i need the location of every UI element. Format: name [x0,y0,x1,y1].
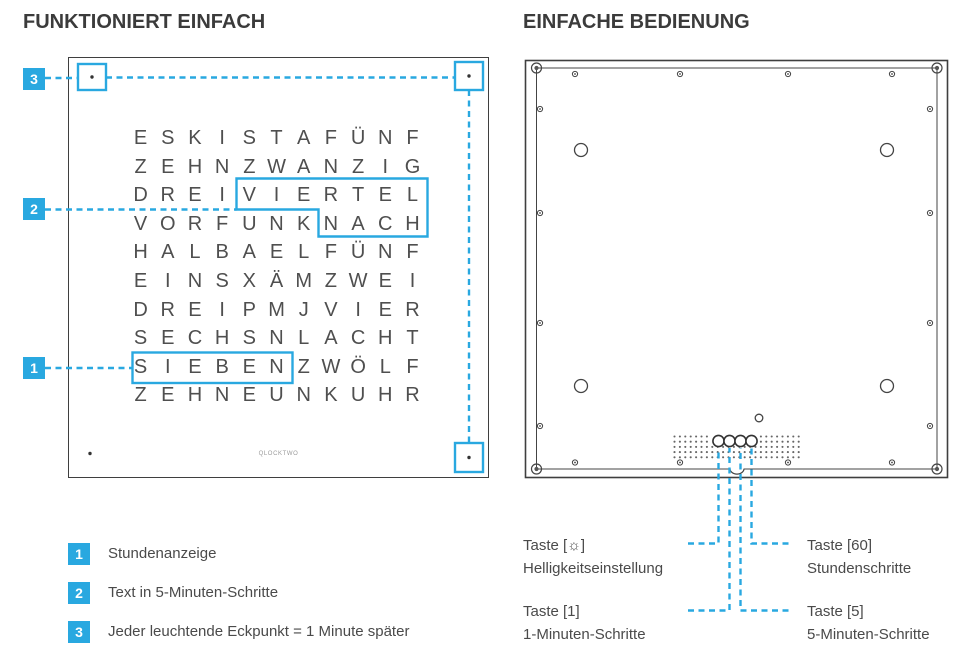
clock-letter: F [399,353,426,382]
legend-item: 1Stundenanzeige [68,543,216,565]
button-name: Taste [1] [523,600,646,623]
clock-letter: N [317,210,344,239]
clock-letter: D [127,181,154,210]
clock-letter: M [290,267,317,296]
clock-letter: E [181,353,208,382]
clock-grid-row: SIEBENZWÖLF [127,353,426,382]
manual-page: FUNKTIONIERT EINFACH EINFACHE BEDIENUNG … [0,0,979,670]
button-desc: Helligkeitseinstellung [523,557,663,580]
clock-letter-grid: ESKISTAFÜNFZEHNZWANZIGDREIVIERTELVORFUNK… [127,124,426,410]
clock-letter: Ö [345,353,372,382]
button-label-1min: Taste [1] 1-Minuten-Schritte [523,600,646,646]
legend-badge: 2 [68,582,90,604]
clock-grid-row: ESKISTAFÜNF [127,124,426,153]
clock-letter: A [290,124,317,153]
clock-letter: T [263,124,290,153]
clock-letter: Ä [263,267,290,296]
clock-letter: R [154,296,181,325]
clock-letter: U [345,381,372,410]
clock-letter: B [209,238,236,267]
clock-letter: E [372,181,399,210]
clock-letter: H [181,153,208,182]
page-title: FUNKTIONIERT EINFACH [23,11,265,34]
clock-letter: E [127,267,154,296]
clock-letter: Z [236,153,263,182]
clock-letter: X [236,267,263,296]
clock-letter: E [372,296,399,325]
clock-letter: W [317,353,344,382]
clock-letter: Z [127,153,154,182]
clock-letter: M [263,296,290,325]
clock-letter: R [317,181,344,210]
clock-letter: F [317,238,344,267]
clock-letter: E [181,181,208,210]
clock-letter: K [290,210,317,239]
clock-letter: A [317,324,344,353]
clock-grid-row: VORFUNKNACH [127,210,426,239]
legend-item: 2Text in 5-Minuten-Schritte [68,582,278,604]
button-desc: Stundenschritte [807,557,911,580]
clock-letter: B [209,353,236,382]
clock-letter: N [290,381,317,410]
clock-letter: R [399,381,426,410]
clock-letter: S [209,267,236,296]
clock-letter: S [127,353,154,382]
clock-letter: H [209,324,236,353]
clock-letter: E [236,353,263,382]
clock-letter: H [399,210,426,239]
button-desc: 1-Minuten-Schritte [523,623,646,646]
clock-letter: N [209,153,236,182]
clock-grid-row: SECHSNLACHT [127,324,426,353]
clock-letter: I [345,296,372,325]
clock-letter: I [154,267,181,296]
clock-letter: I [154,353,181,382]
legend-label: Stundenanzeige [108,543,216,565]
clock-letter: I [209,181,236,210]
clock-letter: N [317,153,344,182]
clock-letter: A [345,210,372,239]
clock-letter: E [154,381,181,410]
clock-letter: S [236,124,263,153]
clock-letter: S [236,324,263,353]
speaker-grille [673,435,799,458]
clock-letter: T [399,324,426,353]
clock-letter: U [236,210,263,239]
clock-letter: V [127,210,154,239]
legend-badge: 3 [68,621,90,643]
clock-letter: E [290,181,317,210]
clock-letter: K [317,381,344,410]
clock-letter: I [372,153,399,182]
clock-letter: R [154,181,181,210]
clock-letter: F [399,124,426,153]
clock-letter: G [399,153,426,182]
mounting-hole-icon [575,144,894,393]
clock-letter: N [372,124,399,153]
clock-letter: E [154,324,181,353]
brand-logo: QLOCKTWO [69,451,488,457]
legend-badge: 1 [68,543,90,565]
clock-letter: E [181,296,208,325]
legend-label: Jeder leuchtende Eckpunkt = 1 Minute spä… [108,621,409,643]
clock-letter: H [127,238,154,267]
clock-letter: L [290,238,317,267]
clock-grid-row: DREIPMJVIER [127,296,426,325]
button-label-hours: Taste [60] Stundenschritte [807,534,911,580]
clock-letter: Z [127,381,154,410]
button-desc: 5-Minuten-Schritte [807,623,930,646]
clock-letter: C [345,324,372,353]
button-name: Taste [5] [807,600,930,623]
clock-letter: W [345,267,372,296]
clock-letter: N [263,353,290,382]
page-title: EINFACHE BEDIENUNG [523,11,750,34]
clock-letter: R [181,210,208,239]
clock-letter: F [317,124,344,153]
clock-letter: I [209,296,236,325]
clock-letter: Z [290,353,317,382]
clock-letter: F [209,210,236,239]
callout-badge-3: 3 [23,68,45,90]
clock-letter: F [399,238,426,267]
clock-letter: O [154,210,181,239]
clock-letter: E [372,267,399,296]
clock-letter: Z [345,153,372,182]
clock-letter: N [372,238,399,267]
clock-letter: I [399,267,426,296]
clock-letter: E [263,238,290,267]
clock-letter: E [154,153,181,182]
clock-letter: Z [317,267,344,296]
clock-letter: H [372,381,399,410]
clock-letter: I [209,124,236,153]
clock-grid-row: ZEHNEUNKUHR [127,381,426,410]
button-name: Taste [☼] [523,534,663,557]
clock-letter: D [127,296,154,325]
clock-letter: P [236,296,263,325]
clock-letter: V [317,296,344,325]
edge-screw-icons [537,71,932,465]
clock-letter: T [345,181,372,210]
clock-letter: A [154,238,181,267]
clock-letter: S [127,324,154,353]
clock-letter: W [263,153,290,182]
clock-letter: E [127,124,154,153]
clock-letter: L [372,353,399,382]
clock-grid-row: DREIVIERTEL [127,181,426,210]
clock-letter: L [181,238,208,267]
clock-letter: H [372,324,399,353]
clock-letter: R [399,296,426,325]
callout-badge-1: 1 [23,357,45,379]
clock-letter: V [236,181,263,210]
push-button-icons [713,435,757,446]
clock-letter: I [263,181,290,210]
button-name: Taste [60] [807,534,911,557]
cable-notch [730,467,744,474]
button-label-brightness: Taste [☼] Helligkeitseinstellung [523,534,663,580]
clock-grid-row: EINSXÄMZWEI [127,267,426,296]
back-panel-illustration [526,61,948,611]
corner-screw-icon [532,63,943,474]
clock-letter: L [290,324,317,353]
clock-letter: N [209,381,236,410]
clock-letter: S [154,124,181,153]
button-label-5min: Taste [5] 5-Minuten-Schritte [807,600,930,646]
legend-label: Text in 5-Minuten-Schritte [108,582,278,604]
clock-letter: N [263,324,290,353]
clock-letter: K [181,124,208,153]
clock-letter: N [181,267,208,296]
clock-face-illustration: ESKISTAFÜNFZEHNZWANZIGDREIVIERTELVORFUNK… [68,57,489,478]
clock-letter: Ü [345,124,372,153]
clock-letter: L [399,181,426,210]
callout-badge-2: 2 [23,198,45,220]
clock-letter: U [263,381,290,410]
clock-letter: Ü [345,238,372,267]
clock-letter: E [236,381,263,410]
clock-grid-row: HALBAELFÜNF [127,238,426,267]
clock-letter: J [290,296,317,325]
clock-letter: H [181,381,208,410]
legend-item: 3Jeder leuchtende Eckpunkt = 1 Minute sp… [68,621,409,643]
clock-letter: A [236,238,263,267]
keyhole-icon [755,414,763,422]
button-leader-lines [688,448,789,611]
clock-letter: N [263,210,290,239]
clock-grid-row: ZEHNZWANZIG [127,153,426,182]
clock-letter: C [372,210,399,239]
clock-letter: C [181,324,208,353]
clock-letter: A [290,153,317,182]
